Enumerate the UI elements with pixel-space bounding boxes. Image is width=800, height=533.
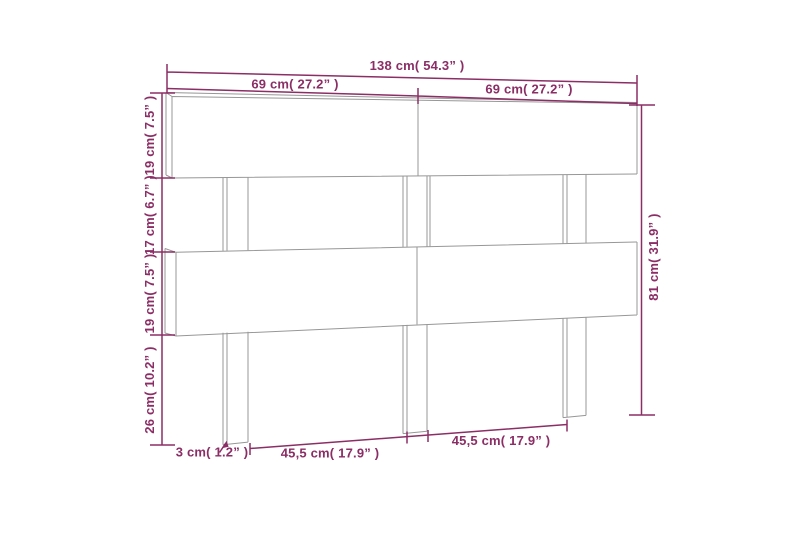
leg-right [563,317,586,417]
leg-left [223,332,248,445]
dim-label-middle-gap-height: 17 cm( 6.7” ) [142,175,157,255]
headboard-outline [165,93,637,445]
middle-board-side-face [165,249,176,337]
legs-center [403,324,427,434]
dim-label-right-section-width: 69 cm( 27.2” ) [485,82,572,97]
middle-board [165,242,637,336]
headboard-dimension-diagram: 138 cm( 54.3” ) 69 cm( 27.2” ) 69 cm( 27… [0,0,800,533]
dim-total-height: 81 cm( 31.9” ) [629,105,661,415]
dim-label-middle-board-height: 19 cm( 7.5” ) [142,254,157,334]
middle-board-front-face [176,242,637,336]
dim-label-lower-leg-height: 26 cm( 10.2” ) [142,346,157,433]
dim-label-total-height: 81 cm( 31.9” ) [646,213,661,300]
upper-post-left [223,177,248,251]
dim-label-left-section-width: 69 cm( 27.2” ) [251,77,338,92]
dim-label-top-board-height: 19 cm( 7.5” ) [142,96,157,176]
top-board-top-and-side-face [166,93,637,179]
dim-bottom-spans: 3 cm( 1.2” ) 45,5 cm( 17.9” ) 45,5 cm( 1… [176,420,567,461]
product-dimension-image: 138 cm( 54.3” ) 69 cm( 27.2” ) 69 cm( 27… [0,0,800,533]
dim-label-right-leg-span: 45,5 cm( 17.9” ) [452,433,551,448]
upper-posts-center [403,176,430,247]
upper-post-right [563,174,586,243]
dim-left-height-chain: 19 cm( 7.5” ) 17 cm( 6.7” ) 19 cm( 7.5” … [142,93,175,445]
legs [223,317,586,445]
top-board-front-face [172,97,637,179]
upper-posts [223,174,586,251]
dimension-annotations: 138 cm( 54.3” ) 69 cm( 27.2” ) 69 cm( 27… [142,58,661,461]
dim-label-total-width: 138 cm( 54.3” ) [370,58,465,73]
top-board [166,93,637,179]
dim-label-leg-width: 3 cm( 1.2” ) [176,445,249,460]
dim-label-left-leg-span: 45,5 cm( 17.9” ) [281,446,380,461]
